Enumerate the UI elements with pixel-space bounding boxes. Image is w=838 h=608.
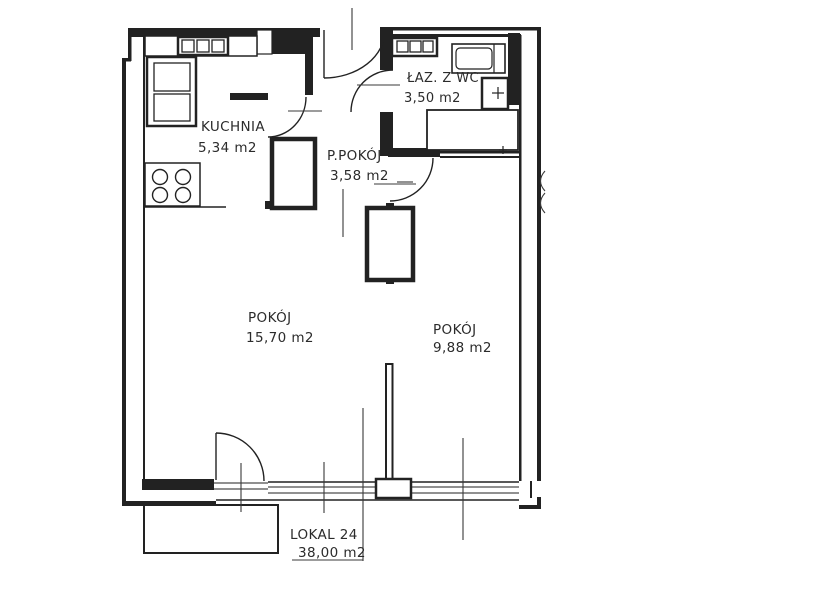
wall-kitchen-south-stub	[230, 93, 268, 100]
wall-top-right-inner	[380, 34, 521, 37]
kitchen-door-arc	[268, 97, 306, 137]
shower-area	[427, 110, 518, 150]
label-kuchnia-area: 5,34 m2	[198, 140, 257, 156]
window-band	[214, 482, 519, 500]
bathroom-door-arc	[351, 70, 393, 112]
wall-room-partition	[386, 364, 393, 480]
bath-duct-shaft	[508, 33, 520, 105]
entrance-door-arc	[324, 30, 385, 78]
wall-right-bottom-cap	[519, 505, 541, 509]
balcony-door-arc	[216, 433, 264, 481]
label-ppokoj-name: P.POKÓJ	[327, 146, 382, 164]
wardrobe-2-tab-top	[386, 203, 394, 210]
label-room-large-name: POKÓJ	[248, 308, 292, 326]
wall-left-inner	[143, 36, 145, 479]
label-ppokoj-area: 3,58 m2	[330, 168, 389, 184]
wardrobe-2-tab-bottom	[386, 278, 394, 284]
label-unit-name: LOKAL 24	[290, 527, 358, 543]
hall-wardrobe-2	[367, 208, 413, 280]
wall-kitchen-right	[305, 28, 313, 95]
wardrobe-1-tab	[265, 201, 272, 209]
label-bathroom-area: 3,50 m2	[404, 91, 461, 106]
wall-top-notch	[257, 30, 272, 54]
floor-plan-canvas: KUCHNIA 5,34 m2 P.POKÓJ 3,58 m2 ŁAZ. Z W…	[0, 0, 838, 608]
label-kuchnia-name: KUCHNIA	[201, 119, 265, 135]
balcony	[144, 505, 278, 553]
wall-top-right-outer	[380, 27, 541, 31]
label-room-small-area: 9,88 m2	[433, 340, 492, 356]
right-edge-arc-1	[541, 171, 546, 191]
wall-right-outer	[537, 27, 541, 481]
right-edge-arc-2	[541, 193, 546, 213]
label-room-large-area: 15,70 m2	[246, 330, 314, 346]
pillar	[376, 479, 411, 498]
label-unit-area: 38,00 m2	[298, 545, 366, 561]
label-room-small-name: POKÓJ	[433, 320, 477, 338]
wall-bath-bottom-line1	[440, 151, 520, 154]
wall-bottom-left-piece	[142, 479, 214, 490]
hall-wardrobe-1	[272, 139, 315, 208]
wall-left-outer-top	[128, 28, 132, 61]
wall-left-outer	[122, 58, 126, 506]
wall-right-notch-edge	[530, 481, 532, 498]
label-bathroom-name: ŁAZ. Z WC	[406, 71, 479, 86]
small-room-door-arc	[390, 158, 433, 201]
wall-bath-bottom-line2	[440, 156, 520, 158]
floor-plan-page: KUCHNIA 5,34 m2 P.POKÓJ 3,58 m2 ŁAZ. Z W…	[0, 0, 838, 608]
